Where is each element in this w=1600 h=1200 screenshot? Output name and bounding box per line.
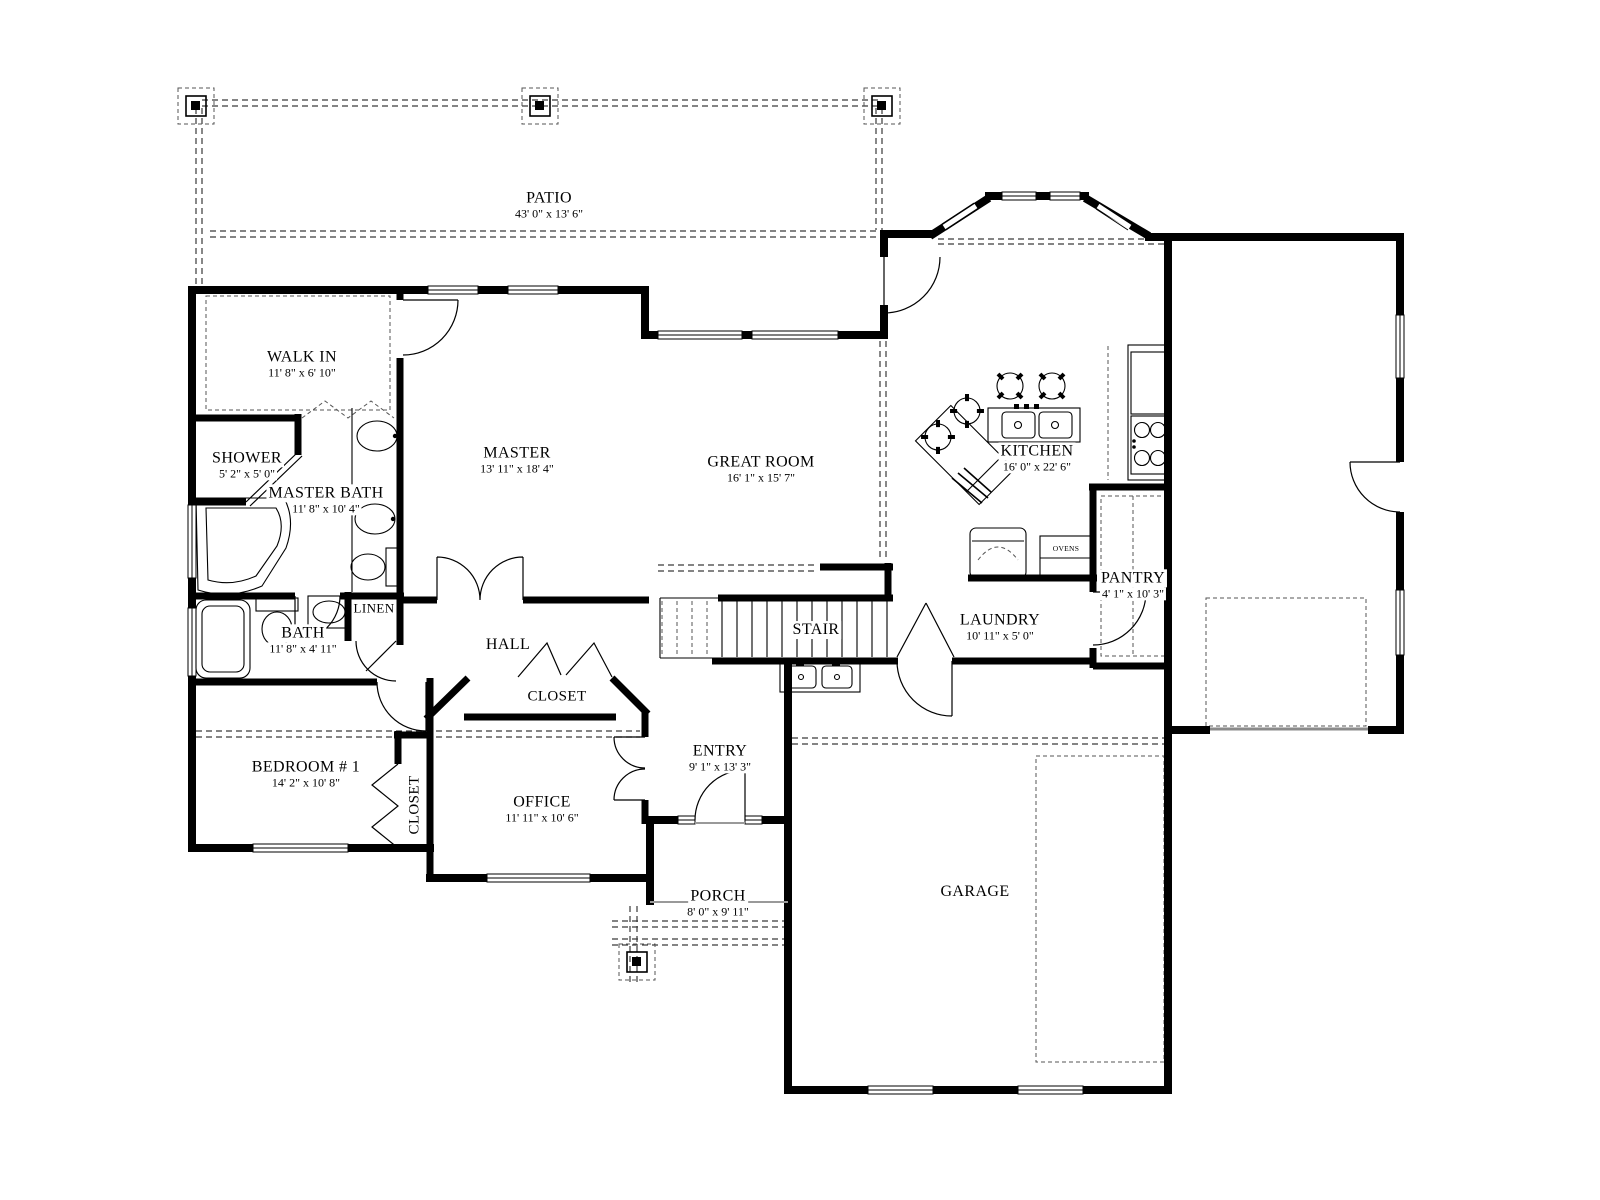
garage-storage-dashed <box>1036 756 1164 1062</box>
room-label-bedroom-1: BEDROOM # 1 14' 2" x 10' 8" <box>250 758 362 789</box>
room-name: SHOWER <box>210 449 284 467</box>
kitchen-sink-icon <box>1039 412 1072 438</box>
toilet-tank <box>256 598 298 611</box>
room-name: HALL <box>484 636 532 654</box>
room-label-patio: PATIO 43' 0" x 13' 6" <box>513 189 585 220</box>
room-label-master-bath: MASTER BATH 11' 8" x 10' 4" <box>266 484 385 515</box>
room-label-shower: SHOWER 5' 2" x 5' 0" <box>210 449 284 480</box>
room-name: OFFICE <box>511 793 573 811</box>
garage-bay-dashed <box>1206 598 1366 726</box>
dashed-lines <box>196 100 1366 1062</box>
room-dims: 43' 0" x 13' 6" <box>513 207 585 220</box>
cooktop-icon <box>1131 416 1166 474</box>
room-name: WALK IN <box>265 348 339 366</box>
room-name: KITCHEN <box>998 442 1075 460</box>
room-name: STAIR <box>791 621 842 639</box>
side-door <box>1350 462 1400 512</box>
room-label-pantry: PANTRY 4' 1" x 10' 3" <box>1099 569 1167 600</box>
room-label-linen: LINEN <box>352 602 397 617</box>
room-label-great-room: GREAT ROOM 16' 1" x 15' 7" <box>705 453 816 484</box>
room-label-walk-in: WALK IN 11' 8" x 6' 10" <box>265 348 339 379</box>
room-name: PATIO <box>524 189 574 207</box>
room-dims: 10' 11" x 5' 0" <box>964 629 1036 642</box>
room-label-bedroom-closet: CLOSET <box>407 773 424 836</box>
stairs <box>660 598 887 658</box>
room-label-kitchen: KITCHEN 16' 0" x 22' 6" <box>998 442 1075 473</box>
room-name: GREAT ROOM <box>705 453 816 471</box>
master-door <box>403 300 458 355</box>
room-label-laundry: LAUNDRY 10' 11" x 5' 0" <box>958 611 1042 642</box>
patio-door <box>884 257 940 313</box>
office-french-doors <box>614 737 645 800</box>
room-dims: 11' 8" x 10' 4" <box>290 502 362 515</box>
room-name: MASTER <box>481 444 552 462</box>
room-dims: 11' 8" x 6' 10" <box>266 366 338 379</box>
appliance-name: OVENS <box>1051 545 1082 553</box>
room-dims: 8' 0" x 9' 11" <box>685 905 751 918</box>
utility-sink-icon <box>822 666 852 688</box>
bedroom-closet-bifold <box>372 764 398 848</box>
room-label-hall: HALL <box>484 636 532 654</box>
room-label-garage: GARAGE <box>938 883 1011 901</box>
room-dims: 11' 8" x 4' 11" <box>267 642 338 655</box>
master-double-doors <box>437 557 523 600</box>
room-name: PANTRY <box>1099 569 1167 587</box>
room-name: LINEN <box>352 602 397 617</box>
room-name: LAUNDRY <box>958 611 1042 629</box>
floor-plan: PATIO 43' 0" x 13' 6" WALK IN 11' 8" x 6… <box>0 0 1600 1200</box>
room-name: ENTRY <box>691 742 749 760</box>
bedroom-door <box>377 682 426 731</box>
room-label-bath: BATH 11' 8" x 4' 11" <box>267 624 338 655</box>
sink-icon <box>357 421 397 451</box>
room-dims: 16' 1" x 15' 7" <box>725 471 797 484</box>
linen-door <box>356 641 396 681</box>
front-door <box>695 770 745 820</box>
kitchen-fixtures <box>916 345 1168 504</box>
floor-plan-drawing <box>0 0 1600 1200</box>
bar-stool-icon <box>997 373 1023 399</box>
room-label-master: MASTER 13' 11" x 18' 4" <box>478 444 556 475</box>
appliance-label-ovens: OVENS <box>1051 545 1082 553</box>
room-label-porch: PORCH 8' 0" x 9' 11" <box>685 887 751 918</box>
cabinet-run <box>1128 345 1168 480</box>
room-name: PORCH <box>688 887 747 905</box>
tub-icon <box>196 600 250 678</box>
doors <box>246 257 1400 848</box>
room-dims: 13' 11" x 18' 4" <box>478 462 556 475</box>
room-label-hall-closet: CLOSET <box>525 689 588 706</box>
room-name: MASTER BATH <box>266 484 385 502</box>
sink-icon <box>313 601 345 623</box>
washer-icon <box>970 528 1026 578</box>
room-name: GARAGE <box>938 883 1011 901</box>
laundry-door <box>897 603 954 657</box>
room-dims: 9' 1" x 13' 3" <box>687 760 753 773</box>
room-dims: 16' 0" x 22' 6" <box>1001 460 1073 473</box>
room-label-office: OFFICE 11' 11" x 10' 6" <box>503 793 580 824</box>
toilet-icon <box>351 554 385 580</box>
room-dims: 4' 1" x 10' 3" <box>1100 587 1166 600</box>
room-name: CLOSET <box>407 773 424 836</box>
bar-stool-icon <box>949 393 986 430</box>
room-name: BEDROOM # 1 <box>250 758 362 776</box>
kitchen-sink-icon <box>1002 412 1035 438</box>
bar-stool-icon <box>1039 373 1065 399</box>
room-label-stair: STAIR <box>791 621 842 639</box>
room-dims: 5' 2" x 5' 0" <box>217 467 277 480</box>
ovens-icon <box>1040 536 1092 578</box>
room-name: BATH <box>279 624 326 642</box>
room-dims: 11' 11" x 10' 6" <box>503 811 580 824</box>
refrigerator-icon <box>1131 352 1165 414</box>
garage-entry-door <box>897 661 952 716</box>
room-name: CLOSET <box>525 689 588 706</box>
room-label-entry: ENTRY 9' 1" x 13' 3" <box>687 742 753 773</box>
room-dims: 14' 2" x 10' 8" <box>270 776 342 789</box>
windows <box>188 192 1404 1094</box>
